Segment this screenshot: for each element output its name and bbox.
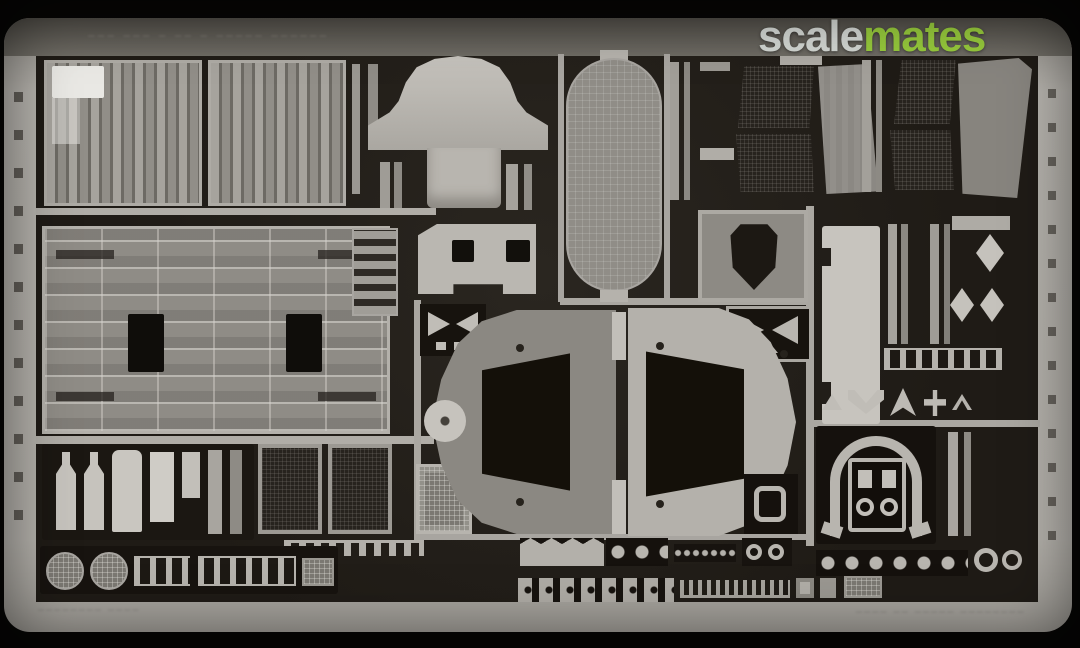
chain-of-small-fittings <box>674 544 736 562</box>
strip-part <box>524 164 532 210</box>
mesh-trapezoid-panel <box>894 60 956 124</box>
strip-part <box>964 432 971 536</box>
inner-rect-part <box>858 470 872 488</box>
large-ring-part <box>974 548 998 572</box>
small-square-part <box>820 578 836 598</box>
arrow-triangle-part <box>822 394 842 410</box>
circle-row <box>816 550 968 576</box>
ladder-strip <box>198 556 296 586</box>
rivet-dot <box>780 350 788 358</box>
strip-part <box>888 224 897 344</box>
small-square-part <box>796 578 814 598</box>
deck-corner-slot <box>56 392 114 401</box>
ladder-strip <box>884 348 1002 370</box>
small-grid-bit <box>844 576 882 598</box>
inner-ring-part <box>880 498 898 516</box>
strip-part <box>862 60 871 192</box>
deck-opening-right <box>286 314 322 372</box>
grille-highlight-soft <box>52 98 80 144</box>
rivet-dot <box>656 342 664 350</box>
framed-mesh-panel <box>328 444 392 534</box>
left-border-etch-marks <box>14 70 23 520</box>
ring-square <box>754 486 786 522</box>
flag-triangle-left <box>428 312 450 336</box>
plate-notch <box>822 248 831 266</box>
etched-label-top: ––– ––– – –– – ––––– –––––– <box>88 28 329 42</box>
etched-label-bottom-left: –––––––– –––– <box>38 604 140 616</box>
strip-part <box>380 162 390 208</box>
rivet-dot <box>516 344 524 352</box>
arch-inner-frame <box>848 458 906 532</box>
grille-panel-right <box>208 60 346 206</box>
mesh-disc <box>46 552 84 590</box>
mesh-trapezoid-panel <box>738 66 814 128</box>
watermark-scale: scale <box>758 12 863 61</box>
strip-part <box>948 432 958 536</box>
chain-of-triangles <box>520 538 604 566</box>
web-vertical-2 <box>558 54 564 302</box>
bracket-hole <box>506 240 530 262</box>
large-ring-part <box>1002 550 1022 570</box>
flag-tab <box>436 342 446 350</box>
strip-part <box>208 450 222 534</box>
strip-part <box>876 60 882 192</box>
bar-part <box>952 216 1010 230</box>
striped-louver-bit <box>352 228 398 316</box>
strip-part <box>352 64 360 194</box>
rivet-dot <box>516 498 524 506</box>
bowtie-triangle-right <box>772 316 798 344</box>
photo-etch-fret-photo: ––– ––– – –– – ––––– –––––– –––––––– –––… <box>0 0 1080 648</box>
bracket-hole <box>452 240 474 262</box>
right-border-etch-marks <box>1048 70 1056 540</box>
rivet-dot <box>656 500 664 508</box>
shroud-cutout-right <box>646 350 744 498</box>
small-ring-part <box>768 544 784 560</box>
panel-part <box>150 452 174 522</box>
strip-part <box>394 162 402 208</box>
framed-mesh-panel <box>258 444 322 534</box>
watermark-mates: mates <box>863 12 985 61</box>
deck-corner-slot <box>318 392 376 401</box>
mesh-trapezoid-panel <box>736 134 814 192</box>
strip-part <box>670 62 679 200</box>
small-ring-part <box>746 544 762 560</box>
fine-comb-strip <box>680 580 790 598</box>
capsule-tab <box>600 290 628 302</box>
mesh-disc <box>90 552 128 590</box>
inner-ring-part <box>856 498 874 516</box>
strip-part <box>684 62 690 200</box>
dome-body <box>427 148 501 208</box>
strip-part <box>700 62 730 71</box>
shroud-tip-disc <box>424 400 466 442</box>
strip-part <box>930 224 939 344</box>
strip-part <box>901 224 908 344</box>
shroud-web-tab <box>612 312 626 360</box>
mesh-trapezoid-panel <box>890 130 954 190</box>
web-horizontal-1 <box>36 208 436 215</box>
ladder-strip <box>134 556 190 586</box>
chain-of-discs <box>606 538 668 566</box>
chain-of-links <box>518 578 674 602</box>
shroud-cutout-left <box>482 352 570 492</box>
deck-corner-slot <box>56 250 114 259</box>
strip-part <box>230 450 242 534</box>
etched-label-bottom-right: –––– –– ––––– –––––––– <box>856 606 1025 618</box>
grille-highlight <box>52 66 104 98</box>
tank-part <box>112 450 142 532</box>
shroud-web-tab <box>612 480 626 534</box>
panel-part <box>182 452 200 498</box>
scalemates-watermark: scalemates <box>758 12 985 62</box>
deck-opening-left <box>128 314 164 372</box>
capsule-screen-part <box>566 58 662 292</box>
strip-part <box>506 164 518 210</box>
strip-part <box>944 224 950 344</box>
small-grid-bit <box>302 558 334 586</box>
web-horizontal-2 <box>36 436 434 444</box>
strip-part <box>700 148 734 160</box>
inner-rect-part <box>882 470 896 488</box>
